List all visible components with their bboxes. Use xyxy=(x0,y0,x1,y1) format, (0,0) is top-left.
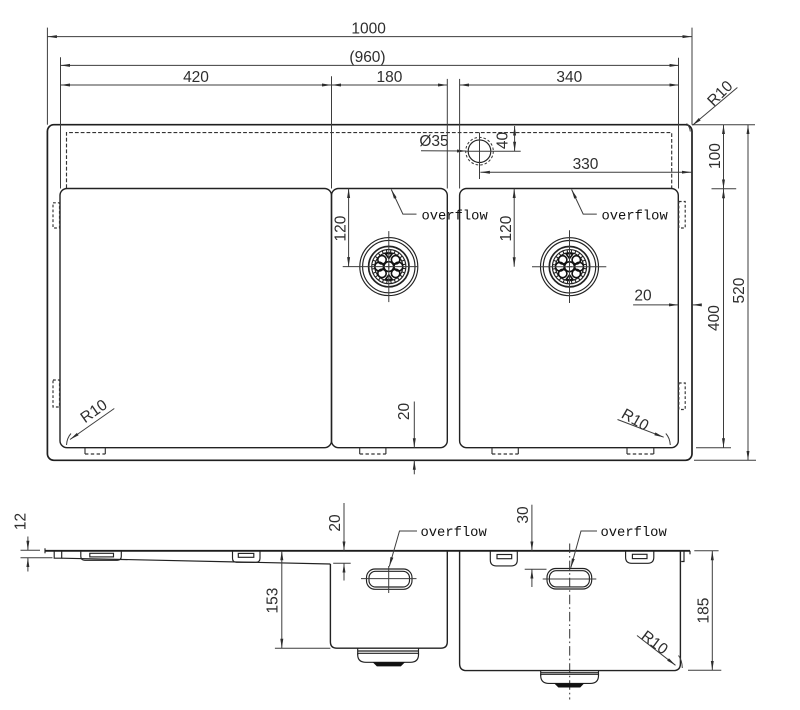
svg-text:20: 20 xyxy=(634,288,652,305)
svg-text:overflow: overflow xyxy=(421,525,488,541)
svg-text:Ø35: Ø35 xyxy=(419,133,448,150)
svg-text:340: 340 xyxy=(556,69,582,86)
svg-text:overflow: overflow xyxy=(602,208,669,224)
svg-text:100: 100 xyxy=(707,143,724,169)
svg-text:overflow: overflow xyxy=(422,208,489,224)
svg-text:20: 20 xyxy=(327,514,344,532)
svg-text:overflow: overflow xyxy=(601,525,668,541)
svg-text:40: 40 xyxy=(495,132,512,150)
svg-text:(960): (960) xyxy=(349,49,385,66)
svg-text:30: 30 xyxy=(515,506,532,524)
svg-text:12: 12 xyxy=(13,513,30,530)
svg-text:153: 153 xyxy=(265,588,282,614)
svg-text:R10: R10 xyxy=(638,628,671,659)
svg-text:20: 20 xyxy=(396,403,413,421)
svg-text:420: 420 xyxy=(183,69,209,86)
svg-text:1000: 1000 xyxy=(351,20,386,37)
svg-text:180: 180 xyxy=(376,69,402,86)
svg-text:400: 400 xyxy=(706,305,723,331)
svg-text:330: 330 xyxy=(573,156,599,173)
svg-text:185: 185 xyxy=(696,598,713,624)
svg-text:120: 120 xyxy=(498,215,515,241)
svg-text:120: 120 xyxy=(332,215,349,241)
svg-text:R10: R10 xyxy=(704,77,736,109)
svg-text:520: 520 xyxy=(731,277,748,303)
